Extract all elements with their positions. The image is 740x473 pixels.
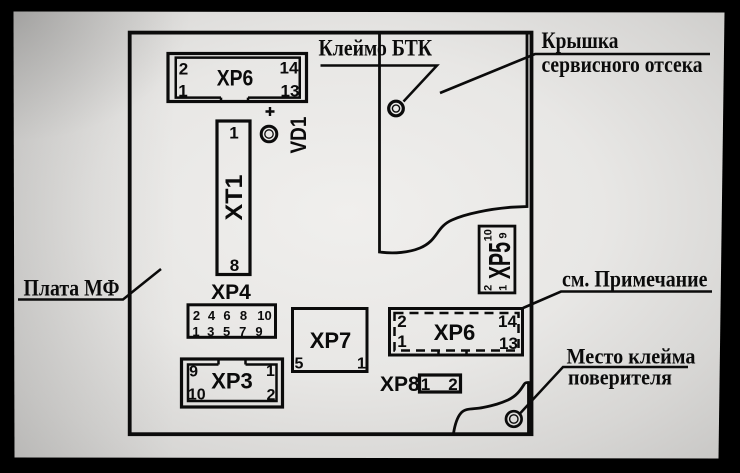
svg-text:13: 13 xyxy=(281,82,300,101)
svg-text:5: 5 xyxy=(223,324,230,339)
svg-text:1: 1 xyxy=(421,375,430,394)
svg-text:9: 9 xyxy=(189,364,198,381)
svg-text:Плата МФ: Плата МФ xyxy=(24,276,120,302)
svg-text:XP3: XP3 xyxy=(211,369,253,394)
svg-text:2: 2 xyxy=(267,387,276,404)
svg-text:2: 2 xyxy=(397,312,406,331)
svg-text:8: 8 xyxy=(230,256,239,275)
svg-text:1: 1 xyxy=(357,356,366,373)
svg-text:1: 1 xyxy=(498,285,510,291)
svg-text:2: 2 xyxy=(483,285,495,291)
svg-text:8: 8 xyxy=(240,308,247,323)
svg-text:XP4: XP4 xyxy=(211,281,251,304)
svg-text:2: 2 xyxy=(448,375,457,394)
svg-text:2: 2 xyxy=(193,308,200,323)
svg-text:XP8: XP8 xyxy=(380,373,420,396)
svg-text:7: 7 xyxy=(239,324,246,339)
svg-text:6: 6 xyxy=(223,308,230,323)
svg-text:3: 3 xyxy=(207,324,214,339)
svg-text:VD1: VD1 xyxy=(286,117,311,154)
svg-text:1: 1 xyxy=(178,82,187,101)
svg-text:XT1: XT1 xyxy=(221,175,248,221)
svg-text:1: 1 xyxy=(397,332,406,351)
svg-text:4: 4 xyxy=(208,308,216,323)
svg-text:10: 10 xyxy=(483,229,495,241)
svg-text:14: 14 xyxy=(498,312,517,331)
svg-text:XP6: XP6 xyxy=(217,65,254,90)
svg-text:14: 14 xyxy=(280,59,299,78)
svg-text:10: 10 xyxy=(188,387,206,404)
svg-text:1: 1 xyxy=(266,363,275,380)
svg-text:см. Примечание: см. Примечание xyxy=(562,267,708,292)
svg-text:Клеймо БТК: Клеймо БТК xyxy=(319,36,433,61)
svg-text:сервисного отсека: сервисного отсека xyxy=(542,52,703,77)
svg-text:9: 9 xyxy=(498,232,510,238)
svg-text:5: 5 xyxy=(295,356,304,373)
svg-text:2: 2 xyxy=(179,60,188,79)
svg-text:1: 1 xyxy=(229,124,238,143)
svg-text:13: 13 xyxy=(499,334,518,353)
svg-text:Крышка: Крышка xyxy=(542,28,619,53)
svg-text:10: 10 xyxy=(257,308,271,323)
svg-text:XP7: XP7 xyxy=(310,328,352,353)
svg-text:XP6: XP6 xyxy=(434,320,476,345)
svg-text:XP5: XP5 xyxy=(482,242,517,279)
svg-text:9: 9 xyxy=(255,324,262,339)
svg-text:1: 1 xyxy=(192,324,199,339)
